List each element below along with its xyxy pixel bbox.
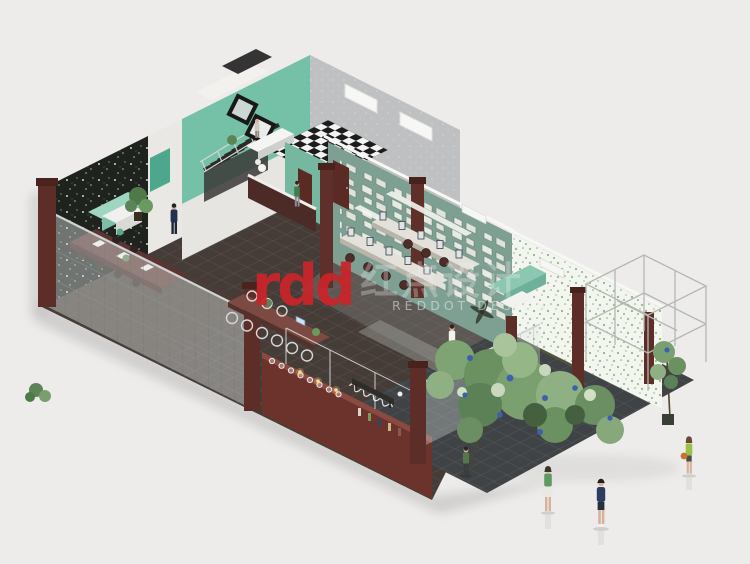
bathroom-plant [227, 135, 237, 145]
isometric-interior-render: rdd 红点设计 REDDOT DESIGN [0, 0, 750, 564]
watermark: rdd 红点设计 REDDOT DESIGN [252, 253, 549, 319]
watermark-logo: rdd [252, 253, 353, 319]
teal-chair [117, 229, 124, 236]
orange-bag [681, 453, 688, 460]
person-stairs [255, 119, 260, 138]
watermark-cn: 红点设计 [360, 259, 524, 303]
table-plant-2 [312, 328, 320, 336]
gallery-door [333, 160, 349, 210]
watermark-en: REDDOT DESIGN [392, 298, 549, 313]
